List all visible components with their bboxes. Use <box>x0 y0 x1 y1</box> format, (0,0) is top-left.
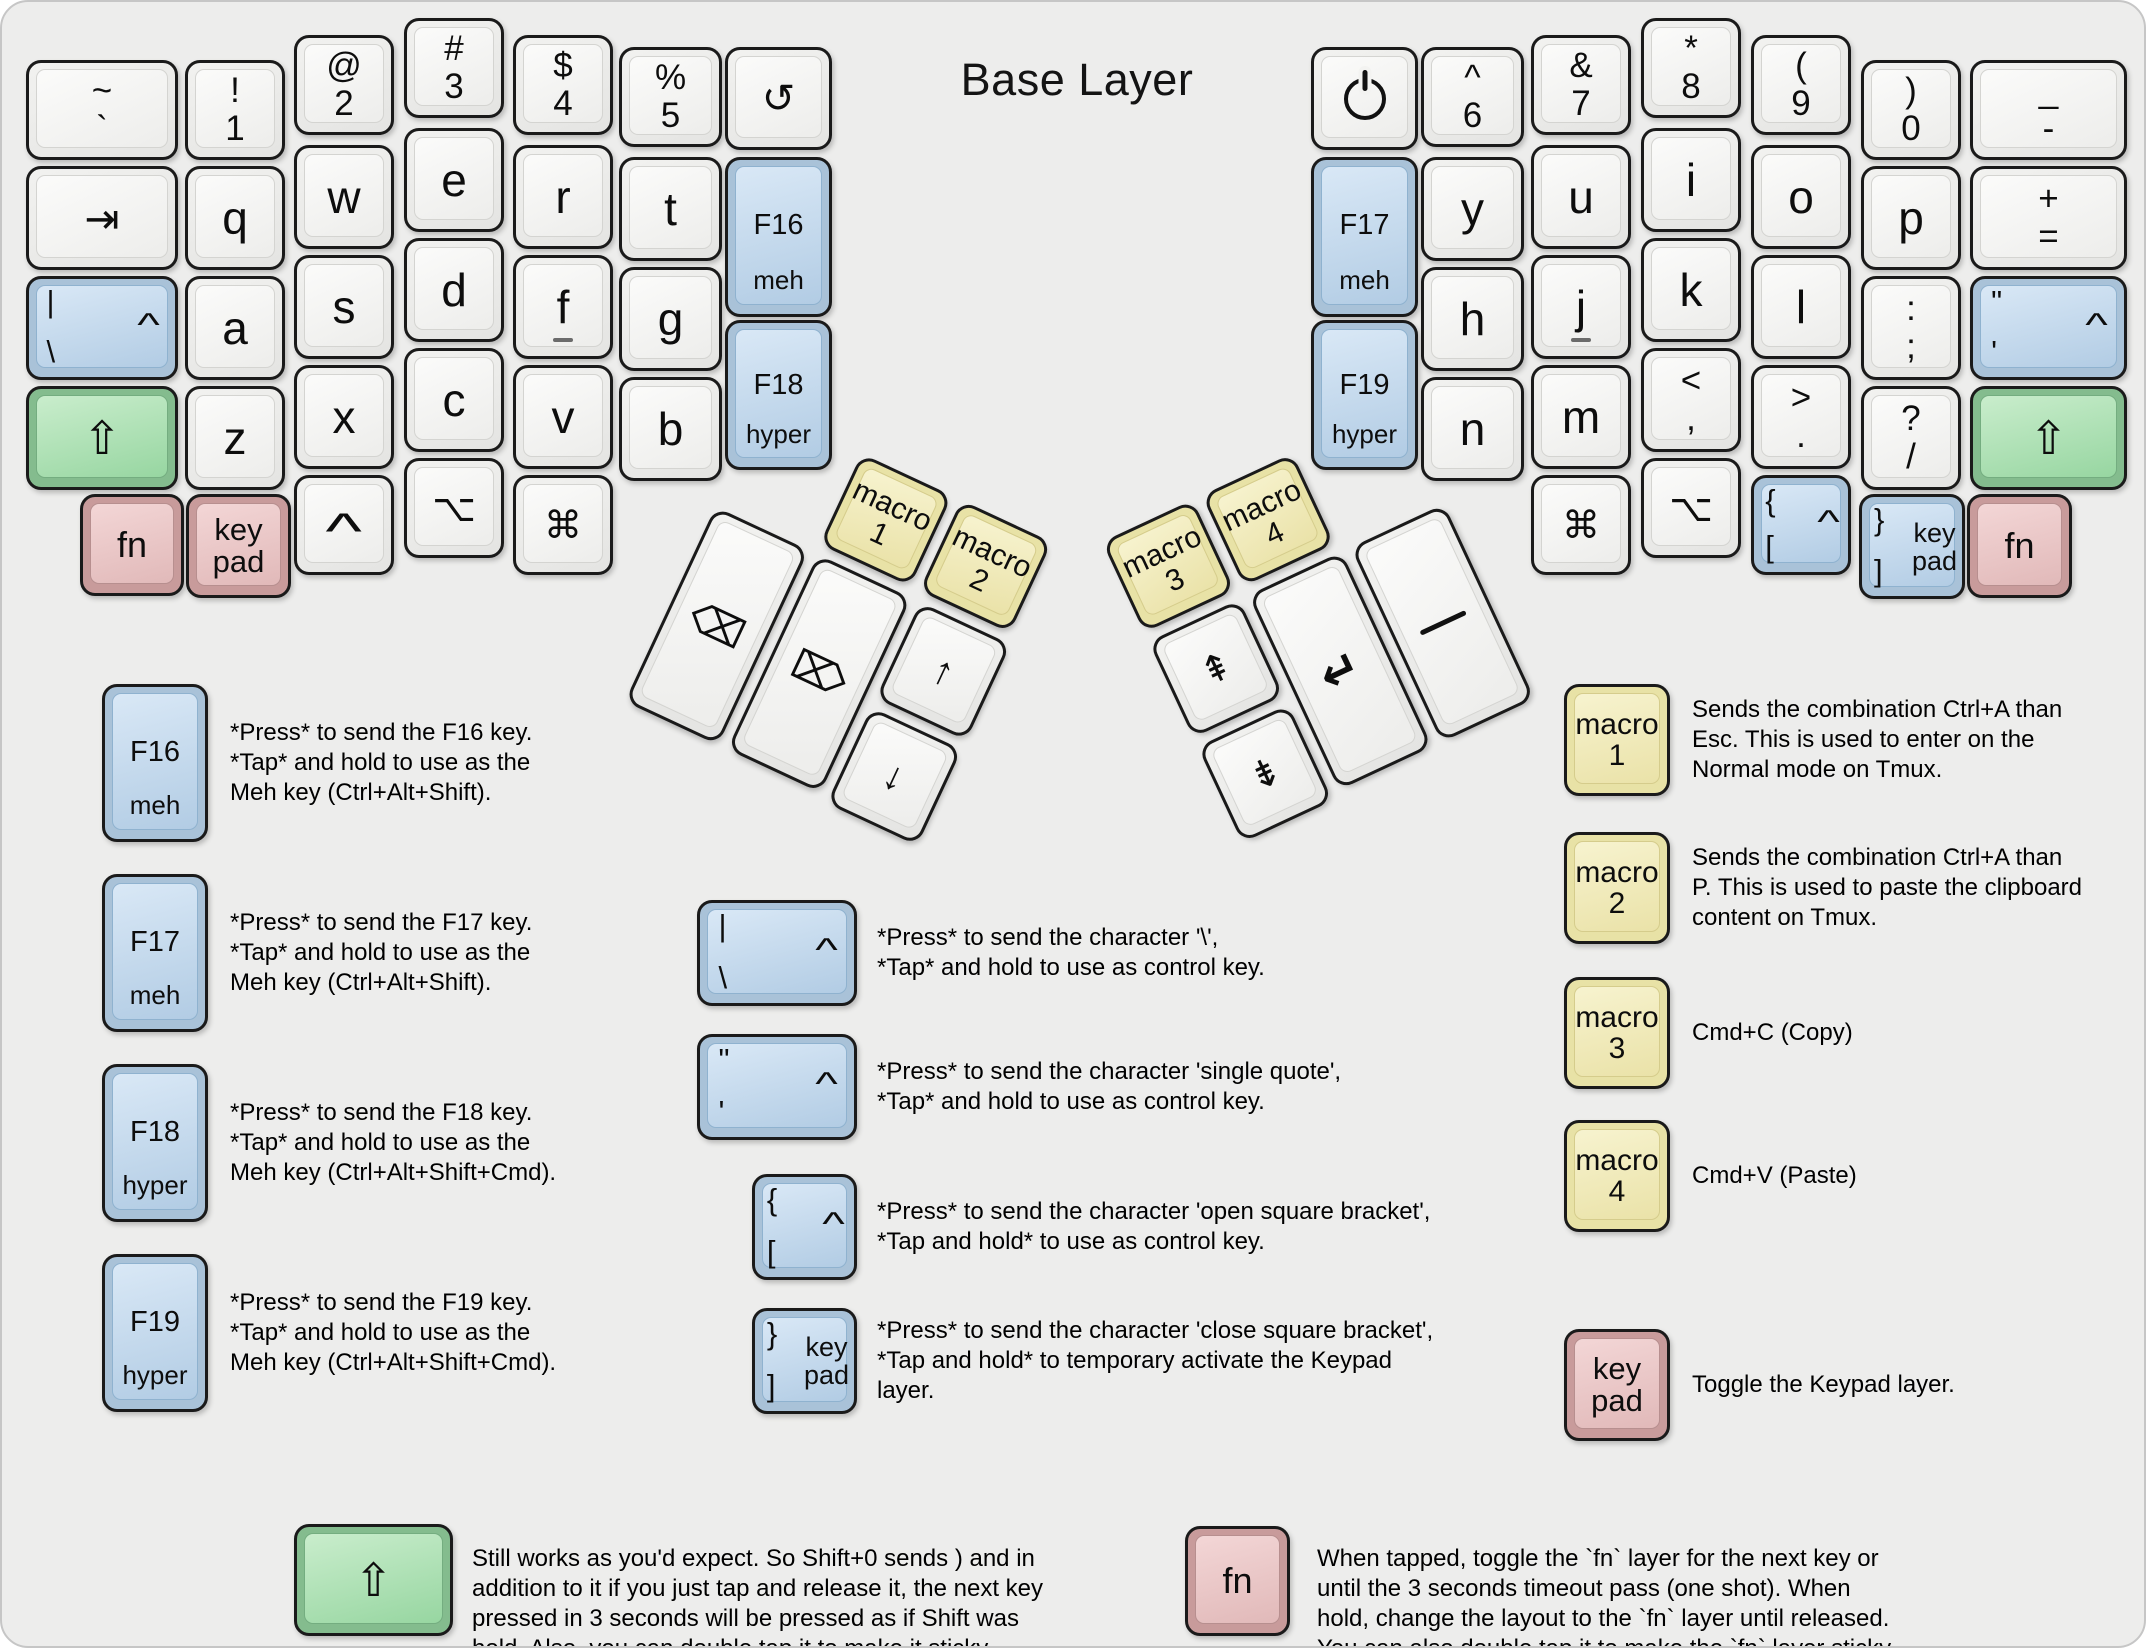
fn-annotation-line-2: until the 3 seconds timeout pass (one sh… <box>1317 1574 1896 1604</box>
shift-annotation-line-3: pressed in 3 seconds will be pressed as … <box>472 1604 1043 1634</box>
shift-annotation-line-4: hold. Also, you can double tap it to mak… <box>472 1634 1043 1648</box>
fn-annotation-text: When tapped, toggle the `fn` layer for t… <box>1317 1544 1896 1648</box>
fn-annotation-line-3: hold, change the layout to the `fn` laye… <box>1317 1604 1896 1634</box>
ann-fn-key: fn <box>1185 1526 1290 1636</box>
fn-annotation-line-1: When tapped, toggle the `fn` layer for t… <box>1317 1544 1896 1574</box>
keyboard-layout-diagram: Base Layer ~`⇥|\^⇧fn!1qazkeypad@2wsx^#3e… <box>0 0 2146 1648</box>
fn-annotation-line-4: You can also double tap it to make the `… <box>1317 1634 1896 1648</box>
modifier-annotations: ⇧Still works as you'd expect. So Shift+0… <box>2 2 2144 1646</box>
ann-shift-key: ⇧ <box>294 1524 453 1636</box>
shift-annotation-line-2: addition to it if you just tap and relea… <box>472 1574 1043 1604</box>
shift-annotation-line-1: Still works as you'd expect. So Shift+0 … <box>472 1544 1043 1574</box>
shift-annotation-text: Still works as you'd expect. So Shift+0 … <box>472 1544 1043 1648</box>
ann-shift-key-label: ⇧ <box>354 1553 393 1607</box>
ann-fn-key-label: fn <box>1222 1560 1252 1602</box>
